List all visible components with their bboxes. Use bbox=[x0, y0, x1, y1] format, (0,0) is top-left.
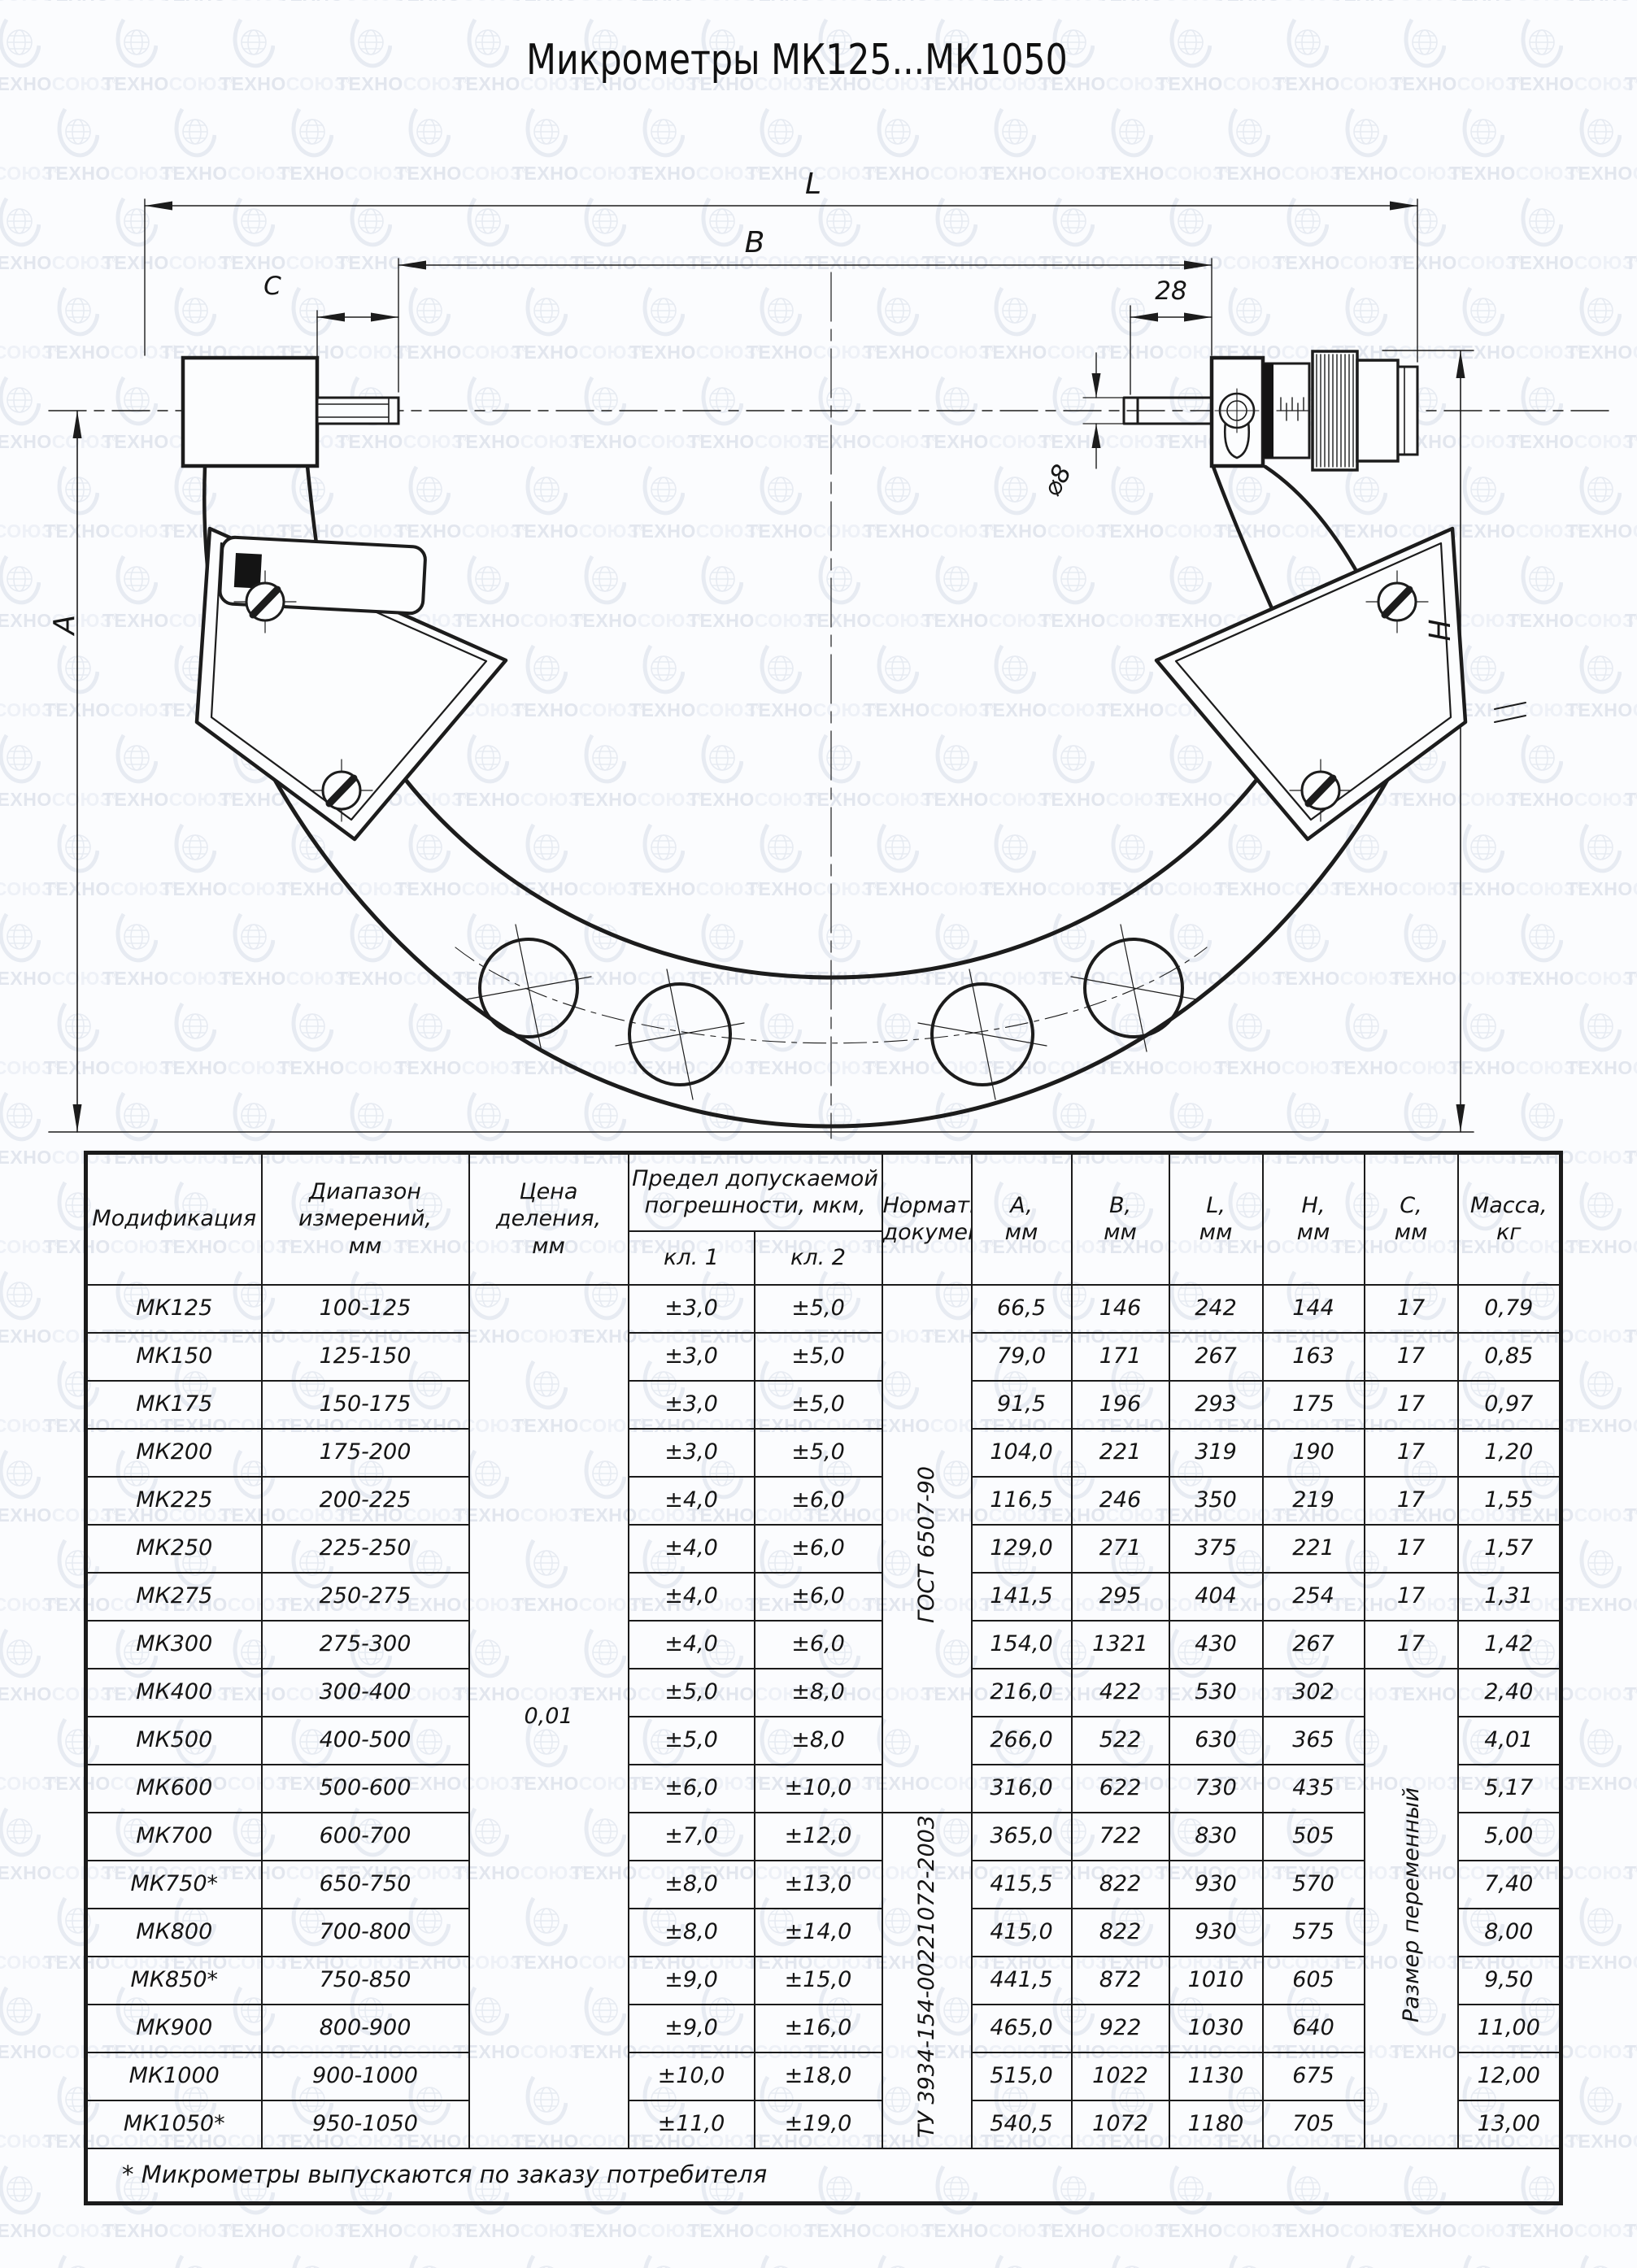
cell-l: 530 bbox=[1169, 1669, 1263, 1717]
cell-c-variable-text: Размер переменный bbox=[1400, 1787, 1422, 2022]
col-header-b: B, мм bbox=[1072, 1153, 1169, 1285]
cell-range: 200-225 bbox=[262, 1477, 469, 1525]
cell-l: 293 bbox=[1169, 1381, 1263, 1429]
cell-l: 375 bbox=[1169, 1525, 1263, 1573]
table-row: МК850*750-850±9,0±15,0441,587210106059,5… bbox=[86, 1957, 1561, 2005]
cell-l: 404 bbox=[1169, 1573, 1263, 1621]
cell-class1: ±4,0 bbox=[629, 1477, 755, 1525]
cell-b: 295 bbox=[1072, 1573, 1169, 1621]
cell-b: 922 bbox=[1072, 2005, 1169, 2053]
watermark-text: ТЕХНОСОЮЗ® bbox=[0, 2220, 119, 2242]
cell-h: 219 bbox=[1263, 1477, 1365, 1525]
watermark-text: ТЕХНОСОЮЗ® bbox=[1625, 2041, 1637, 2063]
col-header-h: H, мм bbox=[1263, 1153, 1365, 1285]
cell-h: 640 bbox=[1263, 2005, 1365, 2053]
cell-class2: ±6,0 bbox=[755, 1621, 882, 1669]
anvil-tip bbox=[317, 398, 398, 424]
dim-label-dia8: ⌀8 bbox=[1037, 460, 1078, 502]
col-header-range: Диапазон измерений, мм bbox=[262, 1153, 469, 1285]
cell-c: 17 bbox=[1365, 1573, 1458, 1621]
cell-h: 605 bbox=[1263, 1957, 1365, 2005]
thimble bbox=[1313, 351, 1357, 470]
left-pad bbox=[197, 529, 506, 839]
cell-class2: ±19,0 bbox=[755, 2100, 882, 2148]
cell-a: 441,5 bbox=[972, 1957, 1072, 2005]
cell-b: 246 bbox=[1072, 1477, 1169, 1525]
cell-range: 950-1050 bbox=[262, 2100, 469, 2148]
cell-range: 175-200 bbox=[262, 1429, 469, 1477]
cell-doc-tu-text: ТУ 3934-154-00221072-2003 bbox=[916, 1815, 938, 2138]
page-title: Микрометры МК125...МК1050 bbox=[526, 36, 1068, 85]
datasheet-page: ТЕХНОСОЮЗ®ТЕХНОСОЮЗ®ТЕХНОСОЮЗ®ТЕХНОСОЮЗ®… bbox=[0, 0, 1637, 2268]
cell-l: 830 bbox=[1169, 1813, 1263, 1861]
cell-h: 705 bbox=[1263, 2100, 1365, 2148]
cell-l: 730 bbox=[1169, 1765, 1263, 1813]
globe-icon bbox=[1462, 2248, 1504, 2268]
cell-class1: ±4,0 bbox=[629, 1621, 755, 1669]
cell-b: 422 bbox=[1072, 1669, 1169, 1717]
col-header-cl1: кл. 1 bbox=[629, 1231, 755, 1285]
cell-class1: ±4,0 bbox=[629, 1525, 755, 1573]
cell-a: 216,0 bbox=[972, 1669, 1072, 1717]
footnote: * Микрометры выпускаются по заказу потре… bbox=[86, 2148, 1561, 2204]
globe-icon bbox=[877, 2248, 919, 2268]
cell-model: МК850* bbox=[86, 1957, 262, 2005]
cell-class2: ±6,0 bbox=[755, 1525, 882, 1573]
cell-l: 1180 bbox=[1169, 2100, 1263, 2148]
cell-l: 1130 bbox=[1169, 2053, 1263, 2100]
cell-class2: ±5,0 bbox=[755, 1429, 882, 1477]
cell-range: 750-850 bbox=[262, 1957, 469, 2005]
cell-c: 17 bbox=[1365, 1621, 1458, 1669]
cell-b: 822 bbox=[1072, 1909, 1169, 1957]
cell-h: 365 bbox=[1263, 1717, 1365, 1765]
cell-model: МК500 bbox=[86, 1717, 262, 1765]
cell-mass: 12,00 bbox=[1458, 2053, 1561, 2100]
cell-mass: 4,01 bbox=[1458, 1717, 1561, 1765]
cell-mass: 11,00 bbox=[1458, 2005, 1561, 2053]
cell-h: 675 bbox=[1263, 2053, 1365, 2100]
cell-class2: ±5,0 bbox=[755, 1285, 882, 1333]
watermark-text: ТЕХНОСОЮЗ® bbox=[1566, 1773, 1637, 1795]
globe-icon bbox=[1579, 1532, 1622, 1592]
cell-class2: ±15,0 bbox=[755, 1957, 882, 2005]
cell-a: 465,0 bbox=[972, 2005, 1072, 2053]
cell-model: МК600 bbox=[86, 1765, 262, 1813]
cell-b: 196 bbox=[1072, 1381, 1169, 1429]
cell-h: 302 bbox=[1263, 1669, 1365, 1717]
cell-b: 146 bbox=[1072, 1285, 1169, 1333]
watermark-text: ТЕХНОСОЮЗ® bbox=[922, 2220, 1056, 2242]
cell-range: 700-800 bbox=[262, 1909, 469, 1957]
cell-l: 1010 bbox=[1169, 1957, 1263, 2005]
sleeve bbox=[1263, 363, 1309, 458]
cell-class1: ±6,0 bbox=[629, 1765, 755, 1813]
anvil-block bbox=[183, 358, 317, 466]
watermark-text: ТЕХНОСОЮЗ® bbox=[1566, 1236, 1637, 1258]
cell-class1: ±7,0 bbox=[629, 1813, 755, 1861]
cell-model: МК800 bbox=[86, 1909, 262, 1957]
cell-h: 163 bbox=[1263, 1333, 1365, 1381]
globe-icon bbox=[1579, 1890, 1622, 1950]
cell-class1: ±3,0 bbox=[629, 1285, 755, 1333]
cell-division-value: 0,01 bbox=[469, 1285, 629, 2148]
globe-icon bbox=[1579, 2248, 1622, 2268]
col-header-doc: Нормативный документ bbox=[882, 1153, 972, 1285]
table-row: МК225200-225±4,0±6,0116,5246350219171,55 bbox=[86, 1477, 1561, 1525]
globe-icon bbox=[642, 2248, 685, 2268]
cell-h: 435 bbox=[1263, 1765, 1365, 1813]
micrometer-drawing: L B C 28 ⌀8 A H bbox=[0, 0, 1637, 1147]
cell-mass: 1,57 bbox=[1458, 1525, 1561, 1573]
globe-icon bbox=[0, 1800, 41, 1861]
table-row: МК300275-300±4,0±6,0154,01321430267171,4… bbox=[86, 1621, 1561, 1669]
cell-model: МК200 bbox=[86, 1429, 262, 1477]
dim-label-H: H bbox=[1424, 619, 1457, 641]
globe-icon bbox=[1579, 1353, 1622, 1413]
col-header-mass: Масса, кг bbox=[1458, 1153, 1561, 1285]
cell-class2: ±6,0 bbox=[755, 1573, 882, 1621]
globe-icon bbox=[174, 2248, 216, 2268]
cell-range: 650-750 bbox=[262, 1861, 469, 1909]
thimble-body bbox=[1357, 360, 1398, 461]
globe-icon bbox=[1345, 2248, 1387, 2268]
footnote-row: * Микрометры выпускаются по заказу потре… bbox=[86, 2148, 1561, 2204]
watermark-text: ТЕХНОСОЮЗ® bbox=[1273, 2220, 1407, 2242]
cell-a: 415,0 bbox=[972, 1909, 1072, 1957]
cell-l: 1030 bbox=[1169, 2005, 1263, 2053]
ratchet bbox=[1398, 367, 1417, 455]
cell-mass: 9,50 bbox=[1458, 1957, 1561, 2005]
table-row: МК700600-700±7,0±12,0ТУ 3934-154-0022107… bbox=[86, 1813, 1561, 1861]
watermark-text: ТЕХНОСОЮЗ® bbox=[1566, 2131, 1637, 2153]
cell-l: 242 bbox=[1169, 1285, 1263, 1333]
cell-l: 930 bbox=[1169, 1861, 1263, 1909]
watermark-text: ТЕХНОСОЮЗ® bbox=[1566, 1415, 1637, 1437]
globe-icon bbox=[994, 2248, 1036, 2268]
table-row: МК175150-175±3,0±5,091,5196293175170,97 bbox=[86, 1381, 1561, 1429]
watermark-text: ТЕХНОСОЮЗ® bbox=[220, 2220, 353, 2242]
cell-model: МК700 bbox=[86, 1813, 262, 1861]
cell-range: 100-125 bbox=[262, 1285, 469, 1333]
cell-a: 129,0 bbox=[972, 1525, 1072, 1573]
watermark-text: ТЕХНОСОЮЗ® bbox=[454, 2220, 587, 2242]
cell-class2: ±16,0 bbox=[755, 2005, 882, 2053]
cell-class1: ±3,0 bbox=[629, 1333, 755, 1381]
logo-mark bbox=[234, 553, 262, 589]
cell-range: 150-175 bbox=[262, 1381, 469, 1429]
cell-class1: ±5,0 bbox=[629, 1669, 755, 1717]
cell-b: 522 bbox=[1072, 1717, 1169, 1765]
cell-class1: ±3,0 bbox=[629, 1381, 755, 1429]
cell-model: МК175 bbox=[86, 1381, 262, 1429]
cell-c: 17 bbox=[1365, 1429, 1458, 1477]
cell-class2: ±12,0 bbox=[755, 1813, 882, 1861]
col-header-c: C, мм bbox=[1365, 1153, 1458, 1285]
dim-label-L: L bbox=[805, 168, 821, 201]
cell-mass: 0,85 bbox=[1458, 1333, 1561, 1381]
cell-a: 141,5 bbox=[972, 1573, 1072, 1621]
cell-h: 267 bbox=[1263, 1621, 1365, 1669]
cell-mass: 0,97 bbox=[1458, 1381, 1561, 1429]
globe-icon bbox=[1579, 2069, 1622, 2129]
dim-label-28: 28 bbox=[1155, 276, 1186, 306]
cell-l: 319 bbox=[1169, 1429, 1263, 1477]
watermark-text: ТЕХНОСОЮЗ® bbox=[1508, 2220, 1637, 2242]
table-row: МК1000900-1000±10,0±18,0515,010221130675… bbox=[86, 2053, 1561, 2100]
cell-range: 600-700 bbox=[262, 1813, 469, 1861]
cell-class2: ±14,0 bbox=[755, 1909, 882, 1957]
cell-a: 116,5 bbox=[972, 1477, 1072, 1525]
cell-h: 221 bbox=[1263, 1525, 1365, 1573]
globe-icon bbox=[1111, 2248, 1153, 2268]
dim-label-A: A bbox=[48, 615, 81, 637]
cell-mass: 1,42 bbox=[1458, 1621, 1561, 1669]
cell-a: 104,0 bbox=[972, 1429, 1072, 1477]
col-header-cl2: кл. 2 bbox=[755, 1231, 882, 1285]
cell-mass: 8,00 bbox=[1458, 1909, 1561, 1957]
watermark-text: ТЕХНОСОЮЗ® bbox=[1625, 1504, 1637, 1526]
cell-class2: ±5,0 bbox=[755, 1381, 882, 1429]
col-header-division: Цена деления, мм bbox=[469, 1153, 629, 1285]
cell-range: 400-500 bbox=[262, 1717, 469, 1765]
cell-range: 225-250 bbox=[262, 1525, 469, 1573]
cell-c: 17 bbox=[1365, 1285, 1458, 1333]
table-row: МК275250-275±4,0±6,0141,5295404254171,31 bbox=[86, 1573, 1561, 1621]
table-row: МК600500-600±6,0±10,0316,06227304355,17 bbox=[86, 1765, 1561, 1813]
globe-icon bbox=[0, 2158, 41, 2218]
col-header-error-limit: Предел допускаемой погрешности, мкм, bbox=[629, 1153, 882, 1231]
col-header-a: A, мм bbox=[972, 1153, 1072, 1285]
table-row: МК125100-1250,01±3,0±5,0ГОСТ 6507-9066,5… bbox=[86, 1285, 1561, 1333]
cell-doc-gost: ГОСТ 6507-90 bbox=[882, 1285, 972, 1813]
globe-icon bbox=[291, 2248, 333, 2268]
cell-class1: ±9,0 bbox=[629, 2005, 755, 2053]
cell-h: 505 bbox=[1263, 1813, 1365, 1861]
cell-class2: ±10,0 bbox=[755, 1765, 882, 1813]
watermark-text: ТЕХНОСОЮЗ® bbox=[571, 2220, 704, 2242]
cell-model: МК900 bbox=[86, 2005, 262, 2053]
cell-a: 415,5 bbox=[972, 1861, 1072, 1909]
cell-class1: ±4,0 bbox=[629, 1573, 755, 1621]
cell-class2: ±8,0 bbox=[755, 1717, 882, 1765]
watermark-text: ТЕХНОСОЮЗ® bbox=[1391, 2220, 1524, 2242]
cell-doc-gost-text: ГОСТ 6507-90 bbox=[916, 1466, 938, 1623]
cell-b: 271 bbox=[1072, 1525, 1169, 1573]
globe-icon bbox=[57, 2248, 99, 2268]
cell-a: 91,5 bbox=[972, 1381, 1072, 1429]
cell-model: МК225 bbox=[86, 1477, 262, 1525]
globe-icon bbox=[0, 1622, 41, 1682]
cell-range: 500-600 bbox=[262, 1765, 469, 1813]
cell-h: 144 bbox=[1263, 1285, 1365, 1333]
watermark-text: ТЕХНОСОЮЗ® bbox=[688, 2220, 821, 2242]
cell-mass: 5,17 bbox=[1458, 1765, 1561, 1813]
cell-class1: ±5,0 bbox=[629, 1717, 755, 1765]
cell-mass: 13,00 bbox=[1458, 2100, 1561, 2148]
watermark-text: ТЕХНОСОЮЗ® bbox=[1566, 1952, 1637, 1974]
cell-a: 154,0 bbox=[972, 1621, 1072, 1669]
cell-a: 79,0 bbox=[972, 1333, 1072, 1381]
right-pad bbox=[1156, 529, 1465, 839]
cell-model: МК750* bbox=[86, 1861, 262, 1909]
cell-l: 267 bbox=[1169, 1333, 1263, 1381]
globe-icon bbox=[1579, 1711, 1622, 1771]
watermark-text: ТЕХНОСОЮЗ® bbox=[1156, 2220, 1290, 2242]
dim-label-B: B bbox=[745, 226, 765, 259]
cell-class1: ±3,0 bbox=[629, 1429, 755, 1477]
cell-c: 17 bbox=[1365, 1333, 1458, 1381]
watermark-text: ТЕХНОСОЮЗ® bbox=[805, 2220, 938, 2242]
cell-class1: ±9,0 bbox=[629, 1957, 755, 2005]
cell-range: 125-150 bbox=[262, 1333, 469, 1381]
cell-model: МК125 bbox=[86, 1285, 262, 1333]
cell-a: 66,5 bbox=[972, 1285, 1072, 1333]
cell-range: 800-900 bbox=[262, 2005, 469, 2053]
spec-table: Модификация Диапазон измерений, мм Цена … bbox=[84, 1151, 1563, 2205]
cell-b: 822 bbox=[1072, 1861, 1169, 1909]
cell-c: 17 bbox=[1365, 1525, 1458, 1573]
cell-a: 540,5 bbox=[972, 2100, 1072, 2148]
table-row: МК200175-200±3,0±5,0104,0221319190171,20 bbox=[86, 1429, 1561, 1477]
cell-doc-tu: ТУ 3934-154-00221072-2003 bbox=[882, 1813, 972, 2148]
globe-icon bbox=[1228, 2248, 1270, 2268]
cell-b: 872 bbox=[1072, 1957, 1169, 2005]
watermark-text: ТЕХНОСОЮЗ® bbox=[1625, 1862, 1637, 1884]
watermark-text: ТЕХНОСОЮЗ® bbox=[1625, 1147, 1637, 1169]
cell-a: 316,0 bbox=[972, 1765, 1072, 1813]
cell-class1: ±8,0 bbox=[629, 1861, 755, 1909]
cell-b: 722 bbox=[1072, 1813, 1169, 1861]
cell-b: 1321 bbox=[1072, 1621, 1169, 1669]
cell-range: 900-1000 bbox=[262, 2053, 469, 2100]
cell-class1: ±11,0 bbox=[629, 2100, 755, 2148]
cell-mass: 1,31 bbox=[1458, 1573, 1561, 1621]
table-row: МК500400-500±5,0±8,0266,05226303654,01 bbox=[86, 1717, 1561, 1765]
dim-label-C: C bbox=[263, 272, 281, 301]
cell-range: 275-300 bbox=[262, 1621, 469, 1669]
watermark-text: ТЕХНОСОЮЗ® bbox=[1625, 1326, 1637, 1347]
cell-range: 300-400 bbox=[262, 1669, 469, 1717]
cell-class2: ±6,0 bbox=[755, 1477, 882, 1525]
cell-class2: ±13,0 bbox=[755, 1861, 882, 1909]
cell-mass: 7,40 bbox=[1458, 1861, 1561, 1909]
watermark-text: ТЕХНОСОЮЗ® bbox=[1625, 2220, 1637, 2242]
table-row: МК1050*950-1050±11,0±19,0540,51072118070… bbox=[86, 2100, 1561, 2148]
cell-b: 622 bbox=[1072, 1765, 1169, 1813]
cell-model: МК275 bbox=[86, 1573, 262, 1621]
cell-h: 575 bbox=[1263, 1909, 1365, 1957]
cell-b: 1072 bbox=[1072, 2100, 1169, 2148]
cell-range: 250-275 bbox=[262, 1573, 469, 1621]
cell-l: 930 bbox=[1169, 1909, 1263, 1957]
cell-mass: 5,00 bbox=[1458, 1813, 1561, 1861]
col-header-model: Модификация bbox=[86, 1153, 262, 1285]
cell-c-variable: Размер переменный bbox=[1365, 1669, 1458, 2148]
watermark-text: ТЕХНОСОЮЗ® bbox=[102, 2220, 236, 2242]
table-row: МК800700-800±8,0±14,0415,08229305758,00 bbox=[86, 1909, 1561, 1957]
cell-c: 17 bbox=[1365, 1381, 1458, 1429]
cell-class1: ±10,0 bbox=[629, 2053, 755, 2100]
globe-icon bbox=[408, 2248, 451, 2268]
cell-model: МК300 bbox=[86, 1621, 262, 1669]
watermark-text: ТЕХНОСОЮЗ® bbox=[337, 2220, 470, 2242]
cell-b: 221 bbox=[1072, 1429, 1169, 1477]
globe-icon bbox=[760, 2248, 802, 2268]
table-row: МК750*650-750±8,0±13,0415,58229305707,40 bbox=[86, 1861, 1561, 1909]
table-row: МК250225-250±4,0±6,0129,0271375221171,57 bbox=[86, 1525, 1561, 1573]
cell-a: 515,0 bbox=[972, 2053, 1072, 2100]
cell-l: 350 bbox=[1169, 1477, 1263, 1525]
cell-class2: ±8,0 bbox=[755, 1669, 882, 1717]
cell-mass: 1,20 bbox=[1458, 1429, 1561, 1477]
cell-b: 1022 bbox=[1072, 2053, 1169, 2100]
cell-model: МК400 bbox=[86, 1669, 262, 1717]
cell-mass: 0,79 bbox=[1458, 1285, 1561, 1333]
cell-c: 17 bbox=[1365, 1477, 1458, 1525]
cell-mass: 2,40 bbox=[1458, 1669, 1561, 1717]
cell-h: 254 bbox=[1263, 1573, 1365, 1621]
watermark-text: ТЕХНОСОЮЗ® bbox=[1566, 1594, 1637, 1616]
cell-a: 266,0 bbox=[972, 1717, 1072, 1765]
col-header-l: L, мм bbox=[1169, 1153, 1263, 1285]
cell-mass: 1,55 bbox=[1458, 1477, 1561, 1525]
cell-h: 570 bbox=[1263, 1861, 1365, 1909]
cell-l: 430 bbox=[1169, 1621, 1263, 1669]
cell-model: МК150 bbox=[86, 1333, 262, 1381]
globe-icon bbox=[0, 1264, 41, 1324]
table-row: МК900800-900±9,0±16,0465,0922103064011,0… bbox=[86, 2005, 1561, 2053]
cell-model: МК250 bbox=[86, 1525, 262, 1573]
cell-a: 365,0 bbox=[972, 1813, 1072, 1861]
cell-b: 171 bbox=[1072, 1333, 1169, 1381]
globe-icon bbox=[525, 2248, 568, 2268]
table-row: МК150125-150±3,0±5,079,0171267163170,85 bbox=[86, 1333, 1561, 1381]
cell-class2: ±5,0 bbox=[755, 1333, 882, 1381]
cell-class2: ±18,0 bbox=[755, 2053, 882, 2100]
globe-icon bbox=[0, 1979, 41, 2039]
globe-icon bbox=[0, 1443, 41, 1503]
watermark-text: ТЕХНОСОЮЗ® bbox=[1625, 1683, 1637, 1705]
table-row: МК400300-400±5,0±8,0216,0422530302Размер… bbox=[86, 1669, 1561, 1717]
cell-class1: ±8,0 bbox=[629, 1909, 755, 1957]
globe-icon bbox=[1579, 1174, 1622, 1234]
cell-model: МК1000 bbox=[86, 2053, 262, 2100]
cell-h: 175 bbox=[1263, 1381, 1365, 1429]
equal-mark bbox=[1495, 703, 1526, 722]
cell-model: МК1050* bbox=[86, 2100, 262, 2148]
watermark-text: ТЕХНОСОЮЗ® bbox=[1039, 2220, 1173, 2242]
cell-h: 190 bbox=[1263, 1429, 1365, 1477]
cell-l: 630 bbox=[1169, 1717, 1263, 1765]
